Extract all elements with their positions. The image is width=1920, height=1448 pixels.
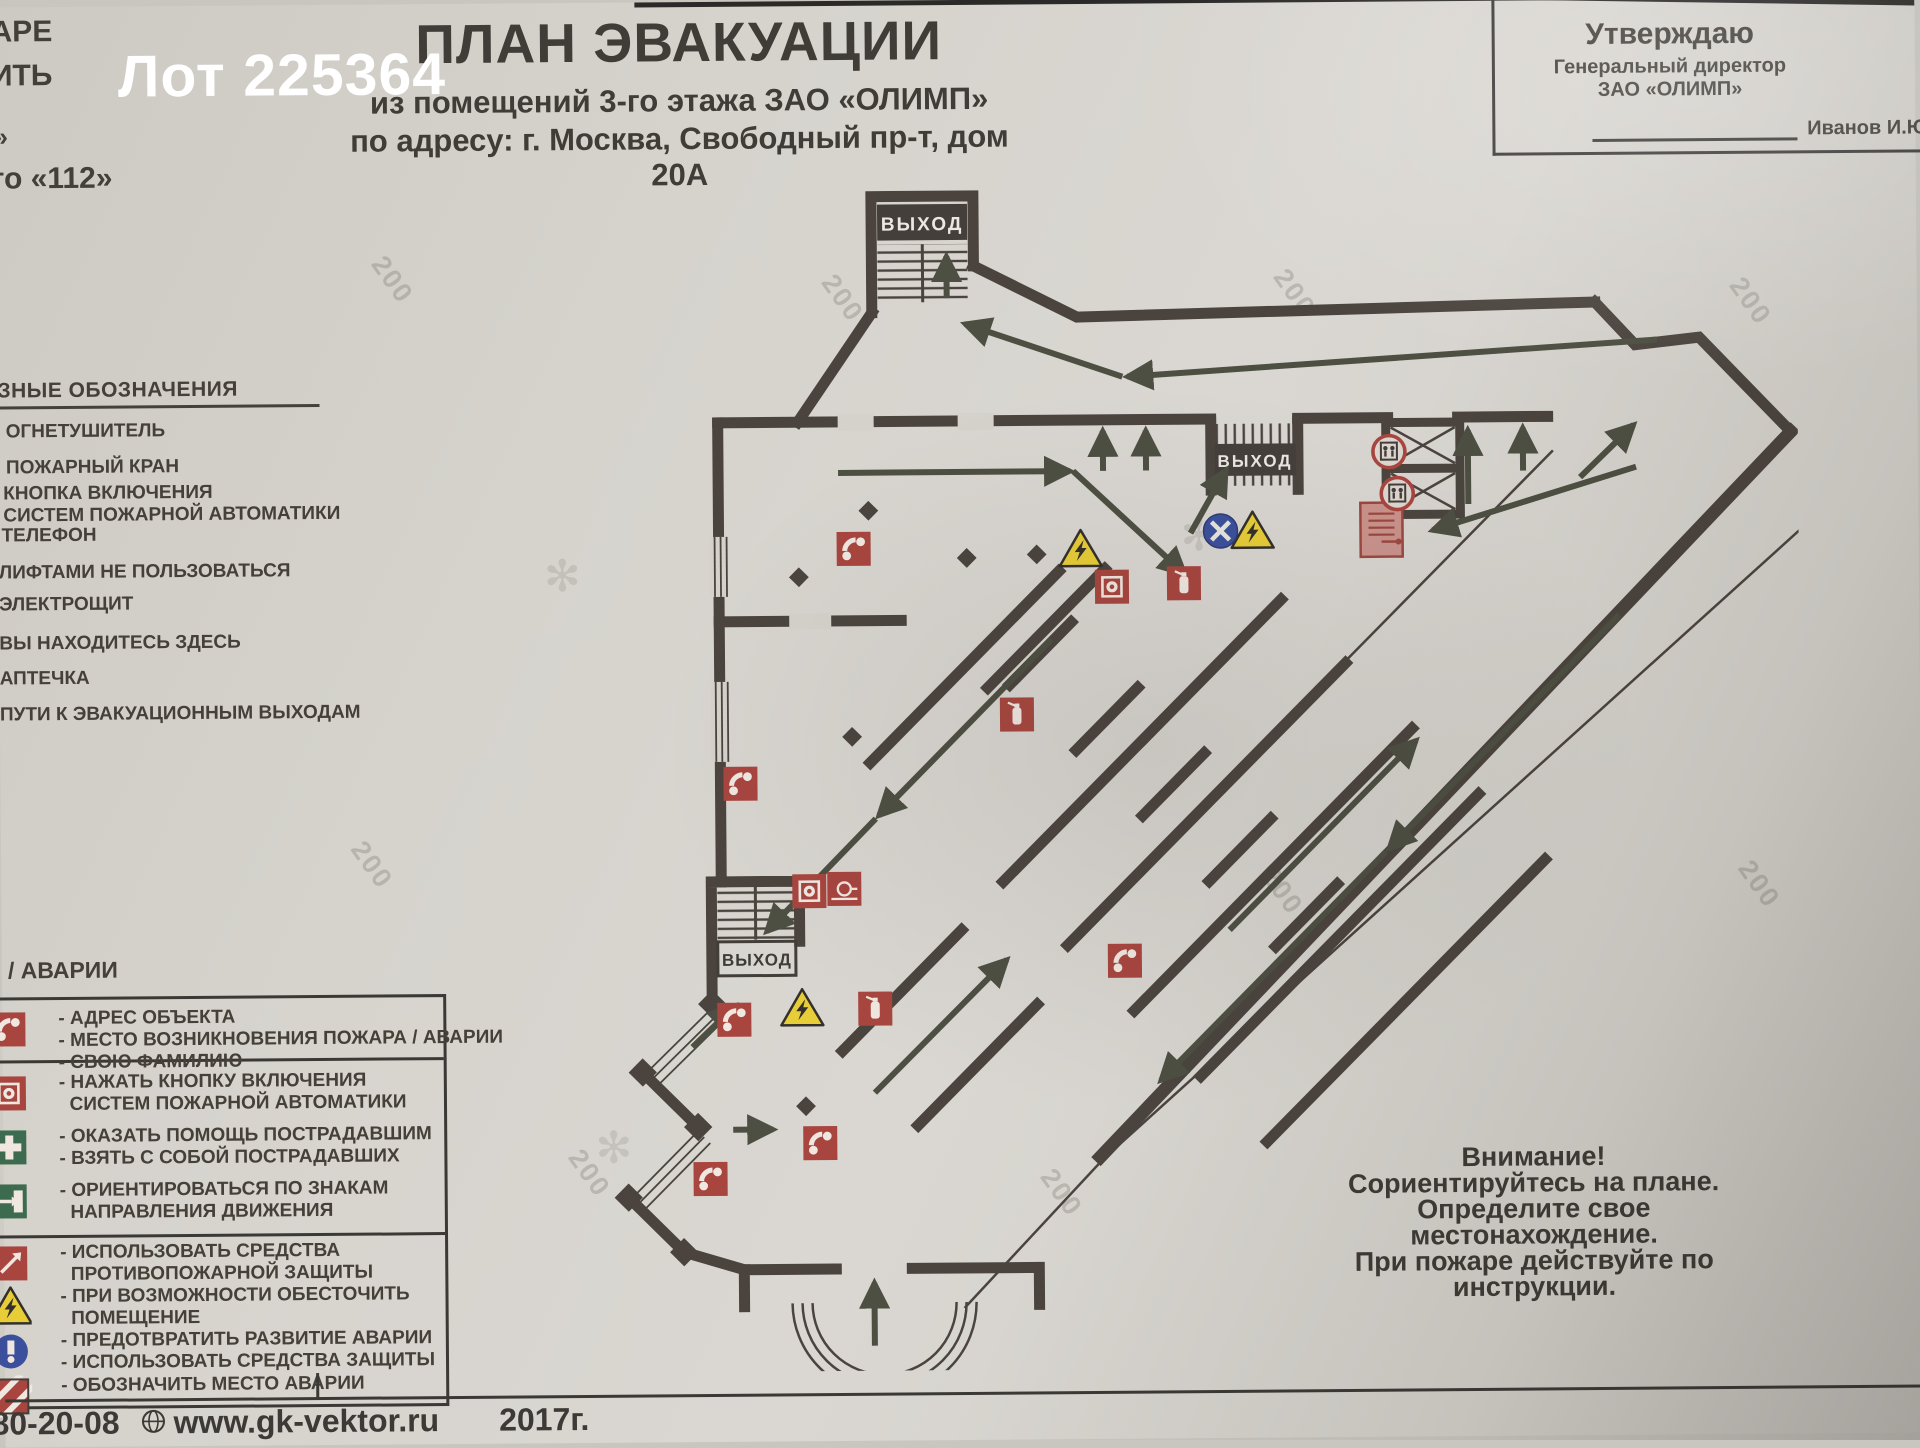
- instruction-text: - ПРЕДОТВРАТИТЬ РАЗВИТИЕ АВАРИИ- ИСПОЛЬЗ…: [61, 1327, 435, 1374]
- legend-rule: [0, 404, 320, 410]
- instruction-line: ПРОТИВОПОЖАРНОЙ ЗАЩИТЫ: [60, 1262, 373, 1286]
- photo-of-evacuation-plan: { "overlay": { "lot_label": "Лот 225364"…: [0, 0, 1920, 1440]
- corner-text-fragment: АРЕ: [0, 15, 52, 49]
- instructions-box: - АДРЕС ОБЪЕКТА- МЕСТО ВОЗНИКНОВЕНИЯ ПОЖ…: [0, 994, 449, 1410]
- footer-website: www.gk-vektor.ru: [173, 1402, 439, 1441]
- exit-label-bottom: ВЫХОД: [722, 950, 792, 970]
- plan-icon-ext: [1000, 697, 1034, 731]
- instruction-line: - ИСПОЛЬЗОВАТЬ СРЕДСТВА: [60, 1240, 373, 1264]
- watermark-200: 200: [344, 835, 399, 895]
- instructions-divider: [0, 1232, 445, 1239]
- legend-heading: ЗНЫЕ ОБОЗНАЧЕНИЯ: [0, 378, 238, 404]
- plan-icon-fire-button: [1095, 570, 1129, 604]
- instruction-group: - ОКАЗАТЬ ПОМОЩЬ ПОСТРАДАВШИМ- ВЗЯТЬ С С…: [0, 1123, 444, 1127]
- plan-icon-diamond: [1027, 544, 1047, 564]
- fire-equip-icon: [0, 1242, 31, 1289]
- instruction-text: - ИСПОЛЬЗОВАТЬ СРЕДСТВА ПРОТИВОПОЖАРНОЙ …: [60, 1240, 373, 1286]
- sheet-top-edge: [634, 0, 1494, 8]
- legend-item: ОГНЕТУШИТЕЛЬ: [6, 420, 166, 443]
- instruction-text: - ПРИ ВОЗМОЖНОСТИ ОБЕСТОЧИТЬ ПОМЕЩЕНИЕ: [60, 1283, 409, 1330]
- instruction-line: - ОРИЕНТИРОВАТЬСЯ ПО ЗНАКАМ: [60, 1178, 389, 1203]
- instruction-line: - МЕСТО ВОЗНИКНОВЕНИЯ ПОЖАРА / АВАРИИ: [58, 1027, 503, 1052]
- legend-item-line: ЭЛЕКТРОЩИТ: [0, 593, 133, 616]
- instruction-text: - ОКАЗАТЬ ПОМОЩЬ ПОСТРАДАВШИМ- ВЗЯТЬ С С…: [59, 1123, 432, 1170]
- plan-icon-ext: [858, 992, 892, 1026]
- plan-icon-diamond: [842, 727, 862, 747]
- instruction-line: - НАЖАТЬ КНОПКУ ВКЛЮЧЕНИЯ: [59, 1069, 407, 1094]
- legend-item: ВЫ НАХОДИТЕСЬ ЗДЕСЬ: [0, 632, 241, 656]
- legend-item: ТЕЛЕФОН: [1, 525, 96, 548]
- instruction-text: - ОРИЕНТИРОВАТЬСЯ ПО ЗНАКАМ НАПРАВЛЕНИЯ …: [60, 1178, 389, 1225]
- plan-icon-warn: [1060, 530, 1102, 566]
- instruction-line: - ПРИ ВОЗМОЖНОСТИ ОБЕСТОЧИТЬ: [60, 1283, 409, 1308]
- instruction-group: - АДРЕС ОБЪЕКТА- МЕСТО ВОЗНИКНОВЕНИЯ ПОЖ…: [0, 1005, 443, 1009]
- plan-icon-diamond: [796, 1096, 816, 1116]
- legend-item-line: ОГНЕТУШИТЕЛЬ: [6, 420, 166, 443]
- watermark-200: 200: [365, 250, 420, 310]
- legend-item-line: КНОПКА ВКЛЮЧЕНИЯ: [3, 481, 340, 506]
- footer-tick: [316, 1373, 319, 1399]
- plan-icon-ext: [1167, 566, 1201, 600]
- plan-icon-phone: [837, 532, 871, 566]
- plan-icon-diamond: [858, 501, 878, 521]
- building-walls: ВЫХОД: [607, 189, 1805, 1373]
- legend-item-line: АПТЕЧКА: [0, 668, 90, 691]
- instruction-line: - ИСПОЛЬЗОВАТЬ СРЕДСТВА ЗАЩИТЫ: [61, 1349, 435, 1374]
- plan-icon-phone: [723, 767, 757, 801]
- stairs-bottom: ВЫХОД: [711, 881, 800, 1002]
- footer: 80-20-08 www.gk-vektor.ru 2017г.: [0, 1401, 589, 1443]
- phone-icon: [0, 1008, 30, 1055]
- legend-item-line: ВЫ НАХОДИТЕСЬ ЗДЕСЬ: [0, 632, 241, 656]
- plan-icon-phone: [717, 1003, 751, 1037]
- approval-box: Утверждаю Генеральный директор ЗАО «ОЛИМ…: [1491, 0, 1920, 156]
- instruction-line: - ПРЕДОТВРАТИТЬ РАЗВИТИЕ АВАРИИ: [61, 1327, 435, 1352]
- instruction-line: ПОМЕЩЕНИЕ: [61, 1305, 410, 1330]
- plan-icon-warn: [781, 989, 823, 1025]
- instruction-line: СИСТЕМ ПОЖАРНОЙ АВТОМАТИКИ: [59, 1091, 407, 1116]
- legend-item-line: ПУТИ К ЭВАКУАЦИОННЫМ ВЫХОДАМ: [0, 702, 361, 727]
- fire-button-icon: [0, 1072, 30, 1119]
- plan-icon-hose: [827, 872, 861, 906]
- plan-icon-diamond: [957, 548, 977, 568]
- exit-sign-icon: [0, 1180, 31, 1227]
- legend-item-line: СИСТЕМ ПОЖАРНОЙ АВТОМАТИКИ: [3, 503, 340, 528]
- plan-sheet-photo: АРЕИТЬ»то «112» ПЛАН ЭВАКУАЦИИ из помеще…: [0, 0, 1920, 1448]
- exit-label-middle: ВЫХОД: [1217, 451, 1292, 471]
- legend-item: КНОПКА ВКЛЮЧЕНИЯСИСТЕМ ПОЖАРНОЙ АВТОМАТИ…: [3, 481, 340, 528]
- footer-phone-fragment: 80-20-08: [0, 1405, 120, 1443]
- legend-item: ЛИФТАМИ НЕ ПОЛЬЗОВАТЬСЯ: [0, 560, 291, 584]
- plan-icon-phone: [693, 1162, 727, 1196]
- legend-item: ЭЛЕКТРОЩИТ: [0, 593, 133, 616]
- instruction-line: - ОКАЗАТЬ ПОМОЩЬ ПОСТРАДАВШИМ: [59, 1123, 432, 1148]
- legend-item: АПТЕЧКА: [0, 668, 90, 691]
- plan-icon-nolift: [1373, 435, 1405, 467]
- warn-icon: [0, 1286, 32, 1333]
- legend-item-line: ЛИФТАМИ НЕ ПОЛЬЗОВАТЬСЯ: [0, 560, 291, 584]
- plan-icon-diamond: [789, 567, 809, 587]
- instruction-group: - ИСПОЛЬЗОВАТЬ СРЕДСТВА ПРОТИВОПОЖАРНОЙ …: [0, 1239, 445, 1243]
- prevent-icon: [0, 1330, 32, 1377]
- instruction-line: - ВЗЯТЬ С СОБОЙ ПОСТРАДАВШИХ: [59, 1145, 432, 1170]
- instructions-heading: / АВАРИИ: [8, 957, 118, 985]
- lot-watermark: Лот 225364: [118, 40, 447, 111]
- plan-icon-fire-button: [792, 874, 826, 908]
- plan-icon-nolift: [1381, 477, 1413, 509]
- plan-icon-phone: [803, 1126, 837, 1160]
- legend-item: ПОЖАРНЫЙ КРАН: [6, 456, 179, 479]
- exit-label-top: ВЫХОД: [881, 214, 964, 236]
- plan-icon-phone: [1108, 944, 1142, 978]
- plan-icon-here: [1203, 514, 1237, 548]
- approval-company: ЗАО «ОЛИМП»: [1495, 77, 1845, 103]
- legend-item-line: ТЕЛЕФОН: [1, 525, 96, 548]
- floor-plan-drawing: ВЫХОД: [535, 133, 1805, 1373]
- instruction-text: - АДРЕС ОБЪЕКТА- МЕСТО ВОЗНИКНОВЕНИЯ ПОЖ…: [58, 1005, 503, 1074]
- globe-icon: [141, 1404, 165, 1441]
- plan-icons-layer: [688, 435, 1419, 1196]
- instruction-text: - НАЖАТЬ КНОПКУ ВКЛЮЧЕНИЯ СИСТЕМ ПОЖАРНО…: [59, 1069, 407, 1116]
- medkit-icon: [0, 1126, 31, 1173]
- approval-title: Утверждаю: [1495, 16, 1845, 53]
- approval-role: Генеральный директор: [1495, 54, 1845, 80]
- corner-text-fragment: »: [0, 121, 8, 152]
- legend-item: ПУТИ К ЭВАКУАЦИОННЫМ ВЫХОДАМ: [0, 702, 361, 727]
- corner-text-fragment: ИТЬ: [0, 59, 53, 93]
- instruction-group: - ОРИЕНТИРОВАТЬСЯ ПО ЗНАКАМ НАПРАВЛЕНИЯ …: [0, 1177, 445, 1181]
- legend-item-line: ПОЖАРНЫЙ КРАН: [6, 456, 179, 479]
- bottom-bay-room: [744, 1267, 1040, 1373]
- footer-year: 2017г.: [499, 1401, 589, 1439]
- signature-name: Иванов И.Ю: [1807, 116, 1920, 140]
- corner-text-fragment: то «112»: [0, 162, 113, 197]
- instruction-line: НАПРАВЛЕНИЯ ДВИЖЕНИЯ: [60, 1200, 389, 1225]
